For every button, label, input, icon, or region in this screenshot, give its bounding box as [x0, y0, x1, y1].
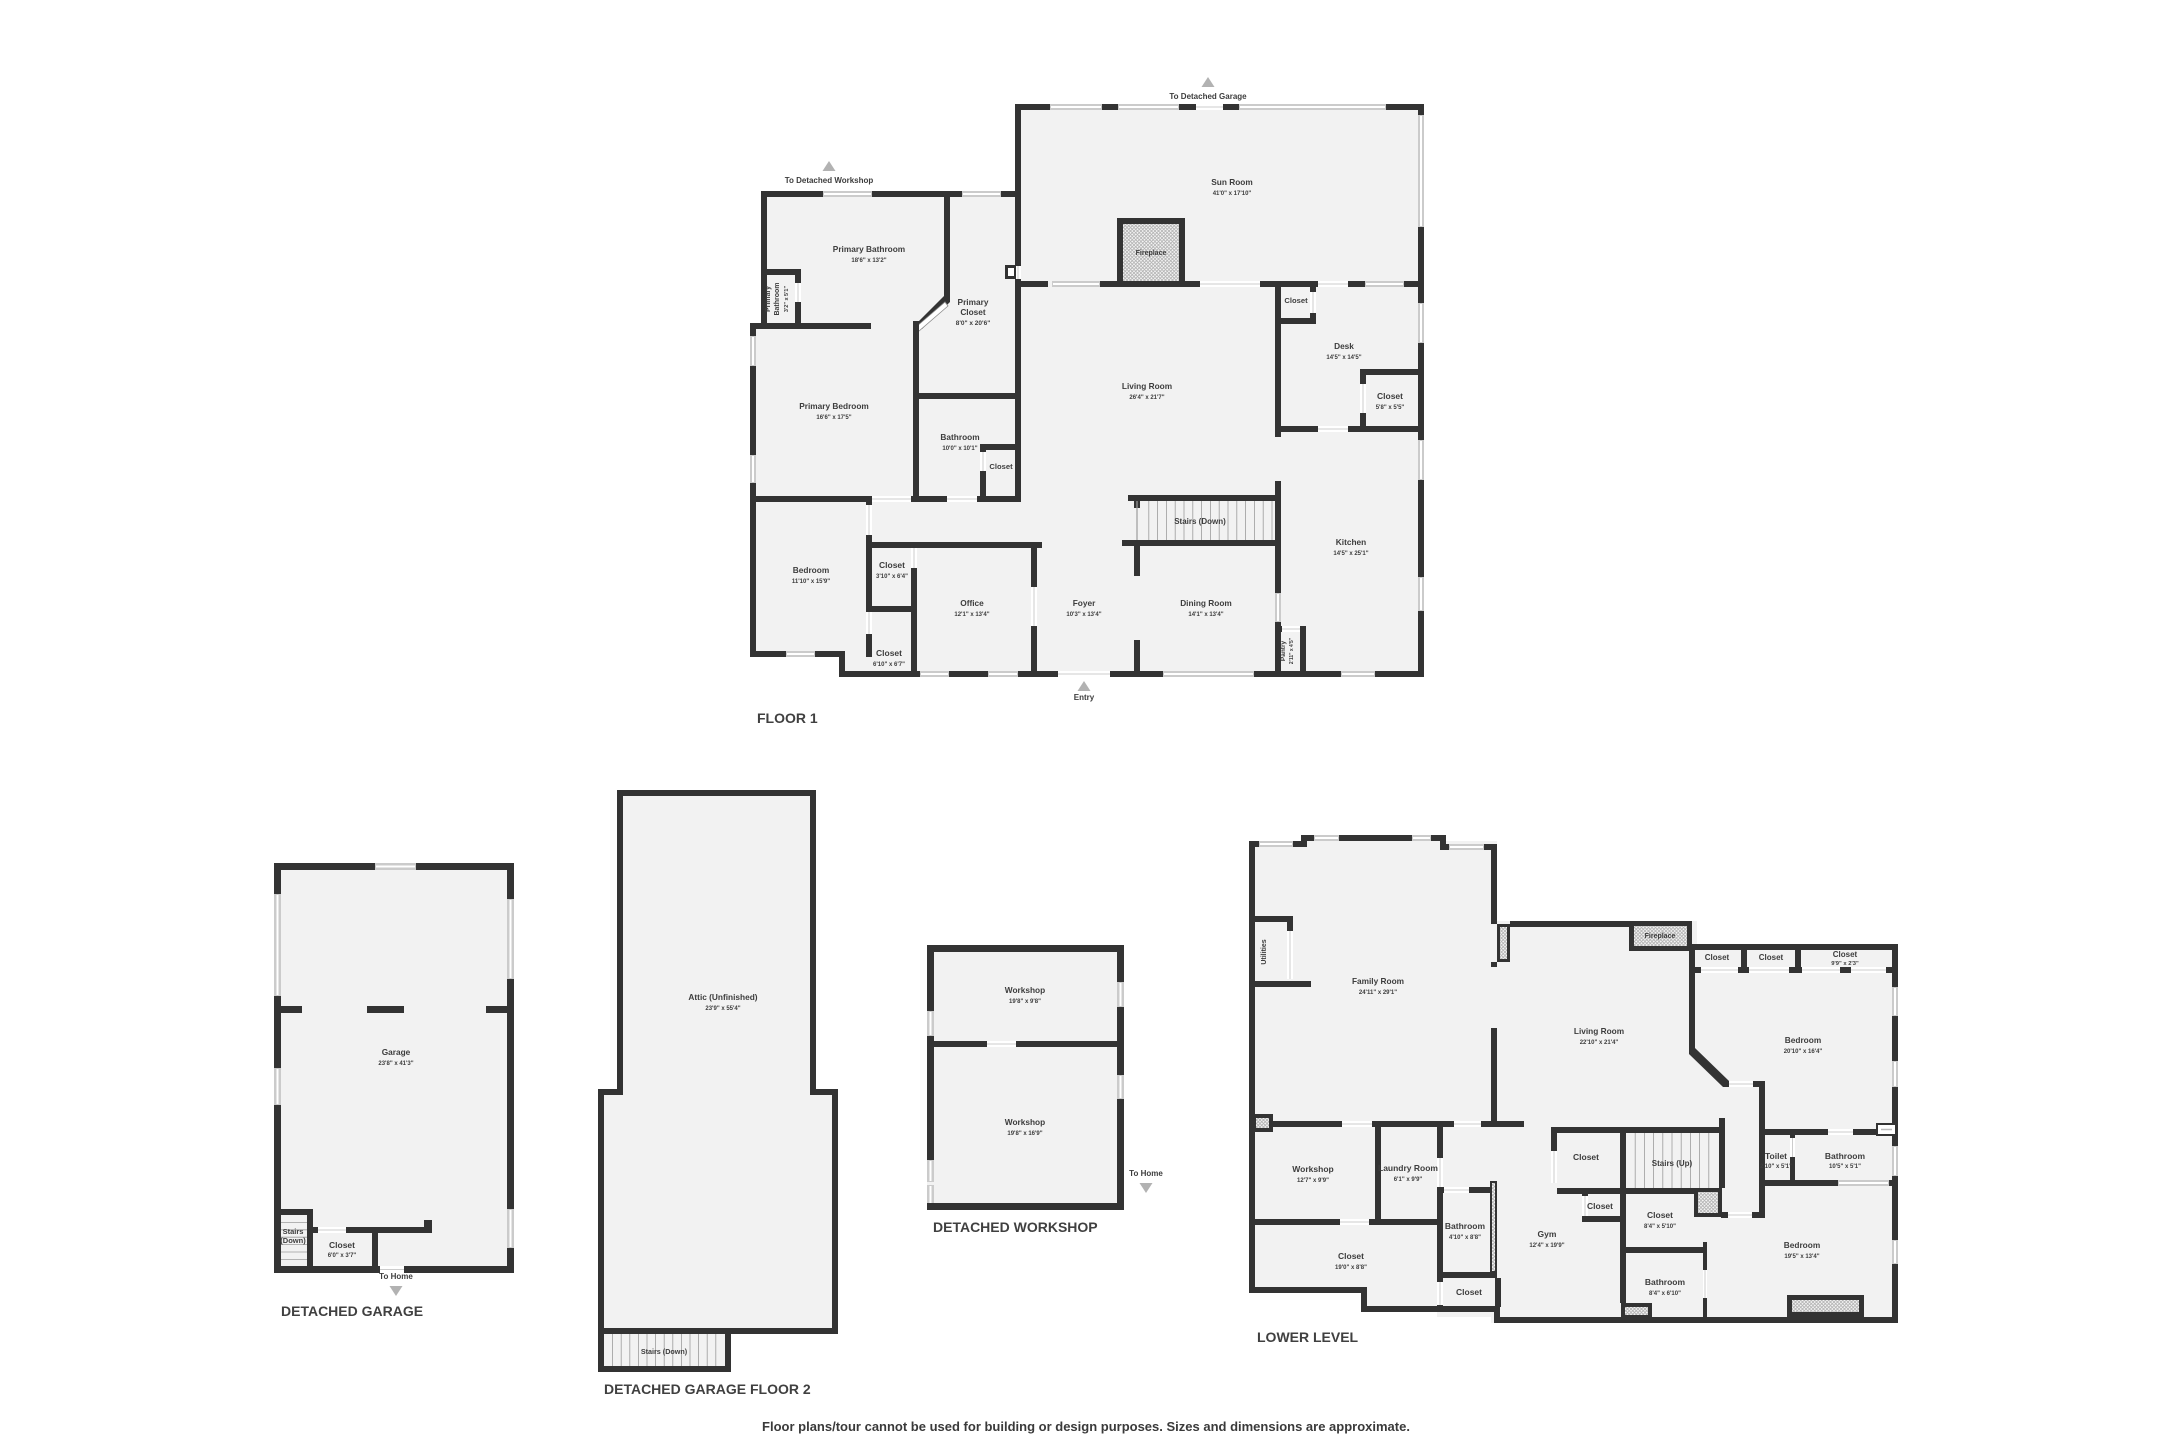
svg-text:Closet: Closet [1759, 953, 1784, 962]
svg-text:Closet: Closet [879, 560, 905, 570]
svg-text:Bathroom: Bathroom [940, 432, 979, 442]
svg-text:Closet: Closet [1573, 1152, 1599, 1162]
svg-text:Foyer: Foyer [1073, 598, 1096, 608]
svg-text:Living Room: Living Room [1574, 1026, 1624, 1036]
svg-text:Pantry: Pantry [1280, 641, 1287, 662]
svg-text:20'10" x 16'4": 20'10" x 16'4" [1784, 1049, 1823, 1055]
svg-text:Closet: Closet [1833, 950, 1858, 959]
svg-text:22'10" x 21'4": 22'10" x 21'4" [1580, 1040, 1619, 1046]
svg-text:Closet: Closet [989, 462, 1013, 471]
svg-text:Primary Bedroom: Primary Bedroom [799, 401, 869, 411]
svg-text:9'9" x 2'3": 9'9" x 2'3" [1831, 961, 1859, 967]
svg-text:Bedroom: Bedroom [1784, 1240, 1820, 1250]
svg-text:Floor plans/tour cannot be use: Floor plans/tour cannot be used for buil… [762, 1419, 1410, 1434]
svg-text:FLOOR 1: FLOOR 1 [757, 710, 818, 726]
svg-text:10'3" x 13'4": 10'3" x 13'4" [1066, 612, 1101, 618]
svg-text:12'1" x 13'4": 12'1" x 13'4" [954, 612, 989, 618]
svg-text:Closet: Closet [1587, 1201, 1613, 1211]
svg-text:Closet: Closet [1338, 1251, 1364, 1261]
svg-text:To Home: To Home [1129, 1169, 1163, 1178]
svg-text:Laundry Room: Laundry Room [1378, 1163, 1438, 1173]
svg-text:Closet: Closet [1284, 296, 1308, 305]
svg-text:Bathroom: Bathroom [1645, 1277, 1686, 1287]
svg-text:14'1" x 13'4": 14'1" x 13'4" [1188, 612, 1223, 618]
svg-text:Bathroom: Bathroom [1825, 1151, 1866, 1161]
svg-text:Stairs (Up): Stairs (Up) [1652, 1159, 1693, 1168]
svg-text:Living Room: Living Room [1122, 381, 1172, 391]
svg-text:Desk: Desk [1334, 341, 1354, 351]
svg-text:Attic (Unfinished): Attic (Unfinished) [688, 992, 757, 1002]
svg-text:2'10" x 5'1": 2'10" x 5'1" [1760, 1164, 1792, 1170]
svg-text:Stairs (Down): Stairs (Down) [641, 1347, 688, 1356]
svg-text:Closet: Closet [960, 307, 986, 317]
svg-text:Bathroom: Bathroom [1445, 1221, 1486, 1231]
svg-text:Utilities: Utilities [1261, 939, 1268, 964]
svg-text:6'1" x 9'9": 6'1" x 9'9" [1394, 1177, 1423, 1183]
svg-text:19'5" x 13'4": 19'5" x 13'4" [1784, 1254, 1819, 1260]
svg-text:Workshop: Workshop [1005, 1117, 1045, 1127]
svg-text:19'8" x 16'9": 19'8" x 16'9" [1007, 1131, 1042, 1137]
svg-text:LOWER LEVEL: LOWER LEVEL [1257, 1329, 1359, 1345]
svg-text:DETACHED GARAGE: DETACHED GARAGE [281, 1303, 423, 1319]
svg-text:18'6" x 13'2": 18'6" x 13'2" [851, 258, 886, 264]
svg-text:Workshop: Workshop [1292, 1164, 1333, 1174]
svg-text:Bedroom: Bedroom [1785, 1035, 1821, 1045]
svg-text:8'4" x 6'10": 8'4" x 6'10" [1649, 1291, 1681, 1297]
svg-text:16'6" x 17'5": 16'6" x 17'5" [816, 415, 851, 421]
svg-text:(Down): (Down) [280, 1236, 306, 1245]
svg-text:8'4" x 5'10": 8'4" x 5'10" [1644, 1224, 1676, 1230]
svg-text:Entry: Entry [1074, 693, 1095, 702]
svg-text:23'8" x 41'3": 23'8" x 41'3" [378, 1061, 413, 1067]
svg-text:To Detached Garage: To Detached Garage [1169, 92, 1247, 101]
svg-text:Closet: Closet [329, 1240, 355, 1250]
svg-text:6'10" x 6'7": 6'10" x 6'7" [873, 662, 905, 668]
svg-text:Closet: Closet [876, 648, 902, 658]
svg-text:10'5" x 5'1": 10'5" x 5'1" [1829, 1164, 1861, 1170]
svg-text:Bedroom: Bedroom [793, 565, 829, 575]
svg-text:24'11" x 29'1": 24'11" x 29'1" [1359, 990, 1397, 996]
svg-text:12'4" x 19'9": 12'4" x 19'9" [1529, 1243, 1564, 1249]
svg-text:Stairs (Down): Stairs (Down) [1174, 517, 1226, 526]
svg-text:Closet: Closet [1705, 953, 1730, 962]
svg-text:14'5" x 14'5": 14'5" x 14'5" [1326, 355, 1361, 361]
svg-text:3'10" x 6'4": 3'10" x 6'4" [876, 574, 908, 580]
svg-text:12'7" x 9'9": 12'7" x 9'9" [1297, 1178, 1329, 1184]
svg-text:8'0" x 20'6": 8'0" x 20'6" [956, 320, 991, 327]
svg-text:19'0" x 8'8": 19'0" x 8'8" [1335, 1265, 1367, 1271]
svg-text:Workshop: Workshop [1005, 985, 1045, 995]
svg-text:Closet: Closet [1377, 391, 1403, 401]
svg-text:Toilet: Toilet [1765, 1151, 1787, 1161]
svg-text:23'9" x 55'4": 23'9" x 55'4" [705, 1006, 740, 1012]
svg-text:To Home: To Home [379, 1272, 413, 1281]
svg-text:11'10" x 15'9": 11'10" x 15'9" [792, 579, 830, 585]
svg-text:Sun Room: Sun Room [1211, 177, 1252, 187]
svg-text:Closet: Closet [1456, 1287, 1482, 1297]
svg-text:26'4" x 21'7": 26'4" x 21'7" [1129, 395, 1164, 401]
svg-text:Garage: Garage [382, 1047, 411, 1057]
svg-text:5'8" x 5'5": 5'8" x 5'5" [1376, 405, 1405, 411]
svg-text:Office: Office [960, 598, 984, 608]
svg-text:To Detached Workshop: To Detached Workshop [785, 176, 874, 185]
svg-text:Kitchen: Kitchen [1336, 537, 1366, 547]
svg-text:Bathroom: Bathroom [774, 282, 781, 315]
svg-text:Family Room: Family Room [1352, 976, 1404, 986]
svg-text:Primary: Primary [765, 286, 772, 312]
svg-text:DETACHED WORKSHOP: DETACHED WORKSHOP [933, 1219, 1098, 1235]
svg-text:Dining Room: Dining Room [1180, 598, 1232, 608]
svg-text:19'8" x 9'8": 19'8" x 9'8" [1009, 999, 1041, 1005]
svg-text:Primary: Primary [958, 297, 989, 307]
svg-text:Fireplace: Fireplace [1645, 933, 1676, 940]
svg-text:Stairs: Stairs [283, 1227, 304, 1236]
svg-text:Primary Bathroom: Primary Bathroom [833, 244, 905, 254]
svg-text:Closet: Closet [1647, 1210, 1673, 1220]
svg-text:10'0" x 10'1": 10'0" x 10'1" [942, 446, 977, 452]
svg-text:2'11" x 4'5": 2'11" x 4'5" [1289, 637, 1295, 664]
svg-text:Fireplace: Fireplace [1136, 250, 1167, 257]
svg-text:14'5" x 25'1": 14'5" x 25'1" [1333, 551, 1368, 557]
svg-text:6'0" x 3'7": 6'0" x 3'7" [328, 1253, 357, 1259]
svg-text:3'2" x 5'1": 3'2" x 5'1" [784, 286, 790, 313]
svg-text:4'10" x 8'8": 4'10" x 8'8" [1449, 1235, 1481, 1241]
svg-text:DETACHED GARAGE FLOOR 2: DETACHED GARAGE FLOOR 2 [604, 1381, 811, 1397]
svg-text:Gym: Gym [1538, 1229, 1557, 1239]
svg-text:41'0" x 17'10": 41'0" x 17'10" [1213, 191, 1252, 197]
